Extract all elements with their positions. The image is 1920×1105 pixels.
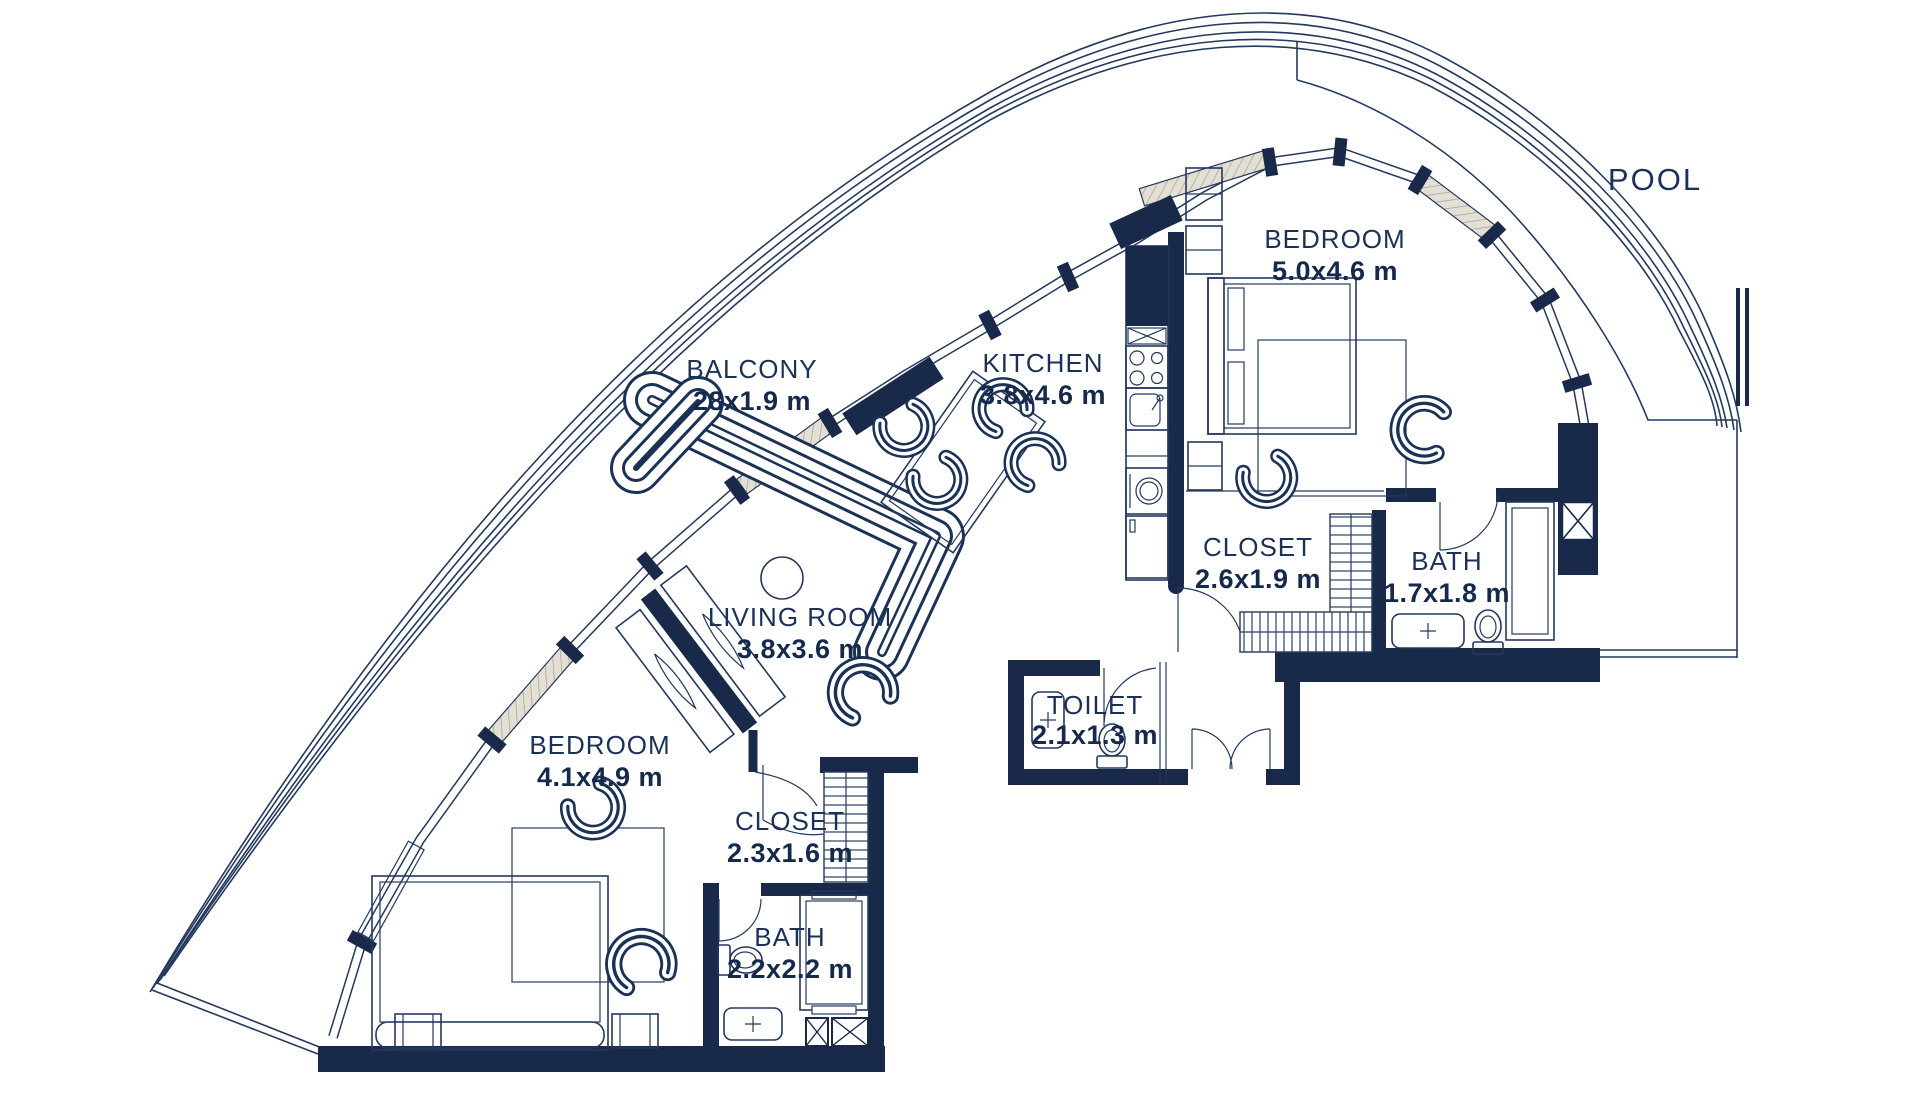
room-label-bedroom-1: BEDROOM 5.0x4.6 m xyxy=(1264,224,1405,286)
walls xyxy=(318,195,1600,1072)
svg-text:BEDROOM: BEDROOM xyxy=(1264,224,1405,254)
rug xyxy=(512,828,664,982)
room-label-closet-1: CLOSET 2.6x1.9 m xyxy=(1195,532,1321,594)
svg-text:BEDROOM: BEDROOM xyxy=(529,730,670,760)
ceiling-lamp xyxy=(761,557,803,599)
window-mullions xyxy=(347,137,1592,954)
dining-chair xyxy=(909,455,970,512)
chair-bedroom1 xyxy=(1239,454,1299,509)
svg-text:1.7x1.8 m: 1.7x1.8 m xyxy=(1384,578,1510,608)
wall-closet2-right xyxy=(868,757,884,1064)
svg-text:KITCHEN: KITCHEN xyxy=(982,348,1103,378)
wall-bath1-bottom xyxy=(1275,648,1600,682)
svg-text:4.1x4.9 m: 4.1x4.9 m xyxy=(537,762,663,792)
shaft-box xyxy=(806,1018,868,1046)
svg-text:BATH: BATH xyxy=(754,922,825,952)
stove-icon xyxy=(1126,346,1168,388)
armchair-bedroom1 xyxy=(1394,399,1445,458)
shower-column xyxy=(1506,502,1554,640)
kitchen-cabinet xyxy=(1126,516,1168,578)
bed-master xyxy=(1208,278,1356,434)
svg-text:28x1.9 m: 28x1.9 m xyxy=(693,386,811,416)
shaft-box xyxy=(1562,502,1594,540)
room-label-bedroom-2: BEDROOM 4.1x4.9 m xyxy=(529,730,670,792)
svg-text:3.8x3.6 m: 3.8x3.6 m xyxy=(737,634,863,664)
rug xyxy=(1258,340,1406,496)
room-label-bath-1: BATH 1.7x1.8 m xyxy=(1384,546,1510,608)
svg-text:2.3x1.6 m: 2.3x1.6 m xyxy=(727,838,853,868)
svg-text:2.6x1.9 m: 2.6x1.9 m xyxy=(1195,564,1321,594)
svg-text:5.0x4.6 m: 5.0x4.6 m xyxy=(1272,256,1398,286)
floor-plan-canvas: POOL BEDROOM 5.0x4.6 m KITCHEN 3.8x4.6 m… xyxy=(0,0,1920,1105)
bed-second xyxy=(372,876,608,1050)
bedroom1-furniture xyxy=(1186,168,1445,509)
toilet-icon xyxy=(1473,610,1503,654)
kitchen-counter xyxy=(1126,246,1168,580)
shower xyxy=(800,895,868,1010)
svg-text:3.8x4.6 m: 3.8x4.6 m xyxy=(980,380,1106,410)
svg-text:TOILET: TOILET xyxy=(1047,690,1144,720)
room-labels: POOL BEDROOM 5.0x4.6 m KITCHEN 3.8x4.6 m… xyxy=(529,162,1702,984)
kitchen-tall-cabinet xyxy=(1126,246,1168,326)
svg-text:BALCONY: BALCONY xyxy=(686,354,817,384)
svg-text:CLOSET: CLOSET xyxy=(1203,532,1313,562)
bedroom2-furniture xyxy=(372,780,673,1050)
kitchen-sink-icon xyxy=(1126,388,1168,430)
floor-plan-page: POOL BEDROOM 5.0x4.6 m KITCHEN 3.8x4.6 m… xyxy=(0,0,1920,1105)
svg-text:LIVING ROOM: LIVING ROOM xyxy=(708,602,892,632)
svg-text:CLOSET: CLOSET xyxy=(735,806,845,836)
svg-text:BATH: BATH xyxy=(1411,546,1482,576)
round-chair xyxy=(606,929,673,990)
washer-icon xyxy=(1126,468,1168,514)
dining-chair xyxy=(1002,429,1063,488)
armchair-living xyxy=(825,655,895,721)
svg-text:2.2x2.2 m: 2.2x2.2 m xyxy=(727,954,853,984)
kitchen-drawers xyxy=(1126,430,1168,456)
wall-right-shaft xyxy=(1558,423,1598,575)
svg-text:2.1x1.3 m: 2.1x1.3 m xyxy=(1032,720,1158,750)
room-label-pool: POOL xyxy=(1608,162,1702,197)
room-label-toilet: TOILET 2.1x1.3 m xyxy=(1032,690,1158,750)
wall-kitchen-strip xyxy=(1168,232,1184,584)
